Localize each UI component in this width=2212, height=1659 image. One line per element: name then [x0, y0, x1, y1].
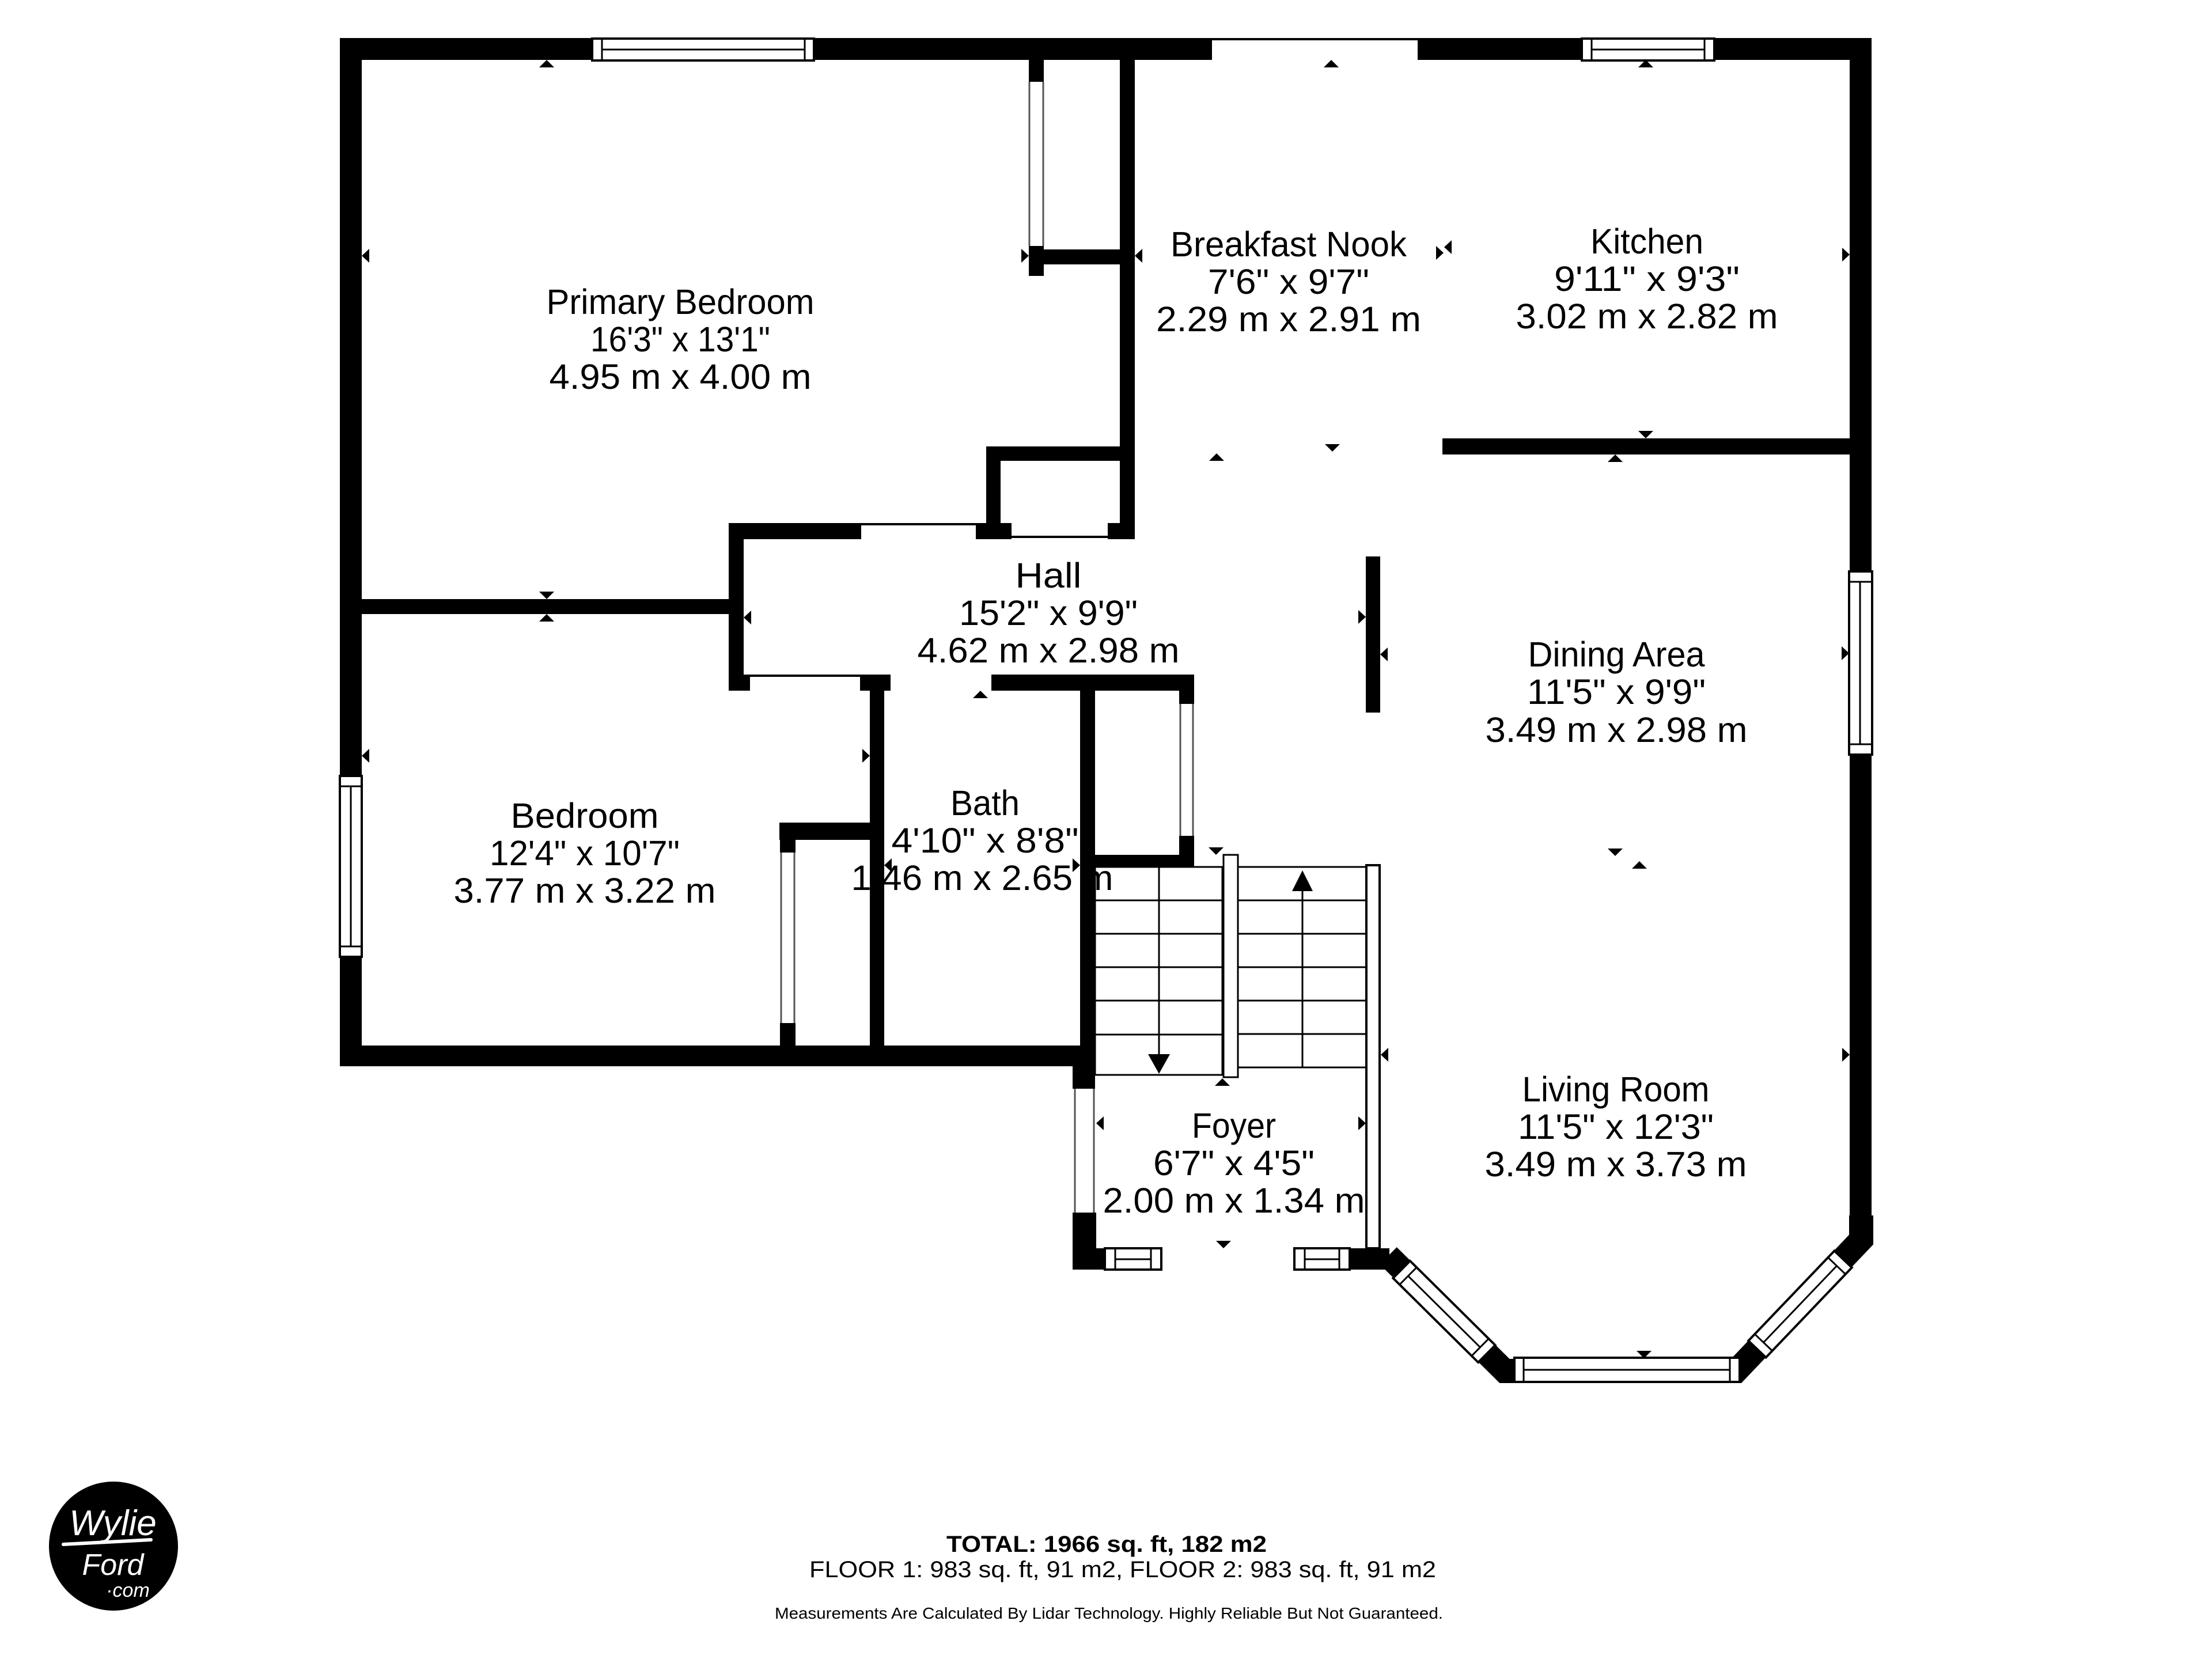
- svg-text:15'2" x 9'9": 15'2" x 9'9": [959, 593, 1138, 632]
- svg-text:16'3" x 13'1": 16'3" x 13'1": [590, 320, 770, 359]
- svg-text:Primary Bedroom: Primary Bedroom: [547, 282, 815, 321]
- svg-text:11'5" x 12'3": 11'5" x 12'3": [1518, 1107, 1714, 1146]
- svg-text:6'7" x 4'5": 6'7" x 4'5": [1153, 1143, 1315, 1183]
- svg-text:2.29 m x 2.91 m: 2.29 m x 2.91 m: [1156, 300, 1421, 339]
- svg-text:Foyer: Foyer: [1192, 1106, 1276, 1145]
- svg-text:Kitchen: Kitchen: [1590, 222, 1703, 261]
- svg-text:Living Room: Living Room: [1522, 1070, 1710, 1109]
- svg-text:FLOOR 1: 983 sq. ft, 91 m2, FL: FLOOR 1: 983 sq. ft, 91 m2, FLOOR 2: 983…: [809, 1557, 1436, 1582]
- svg-text:3.49 m x 2.98 m: 3.49 m x 2.98 m: [1486, 710, 1748, 749]
- svg-text:Breakfast Nook: Breakfast Nook: [1171, 225, 1407, 264]
- svg-text:TOTAL: 1966 sq. ft, 182 m2: TOTAL: 1966 sq. ft, 182 m2: [946, 1532, 1267, 1557]
- svg-text:4.95 m x 4.00 m: 4.95 m x 4.00 m: [550, 357, 812, 396]
- svg-text:Ford: Ford: [82, 1548, 145, 1582]
- svg-text:4.62 m x 2.98 m: 4.62 m x 2.98 m: [918, 631, 1180, 670]
- svg-text:7'6" x 9'7": 7'6" x 9'7": [1208, 262, 1369, 301]
- svg-text:Bath: Bath: [950, 783, 1020, 823]
- svg-text:Bedroom: Bedroom: [511, 796, 659, 835]
- svg-text:Wylie: Wylie: [69, 1503, 157, 1543]
- svg-text:·com: ·com: [106, 1580, 150, 1601]
- svg-text:3.49 m x 3.73 m: 3.49 m x 3.73 m: [1485, 1145, 1747, 1184]
- svg-text:3.77 m x 3.22 m: 3.77 m x 3.22 m: [454, 871, 716, 910]
- svg-text:3.02 m x 2.82 m: 3.02 m x 2.82 m: [1516, 297, 1778, 336]
- svg-text:Hall: Hall: [1016, 556, 1082, 595]
- svg-text:9'11" x 9'3": 9'11" x 9'3": [1554, 259, 1740, 298]
- svg-text:Measurements Are Calculated By: Measurements Are Calculated By Lidar Tec…: [775, 1604, 1443, 1622]
- svg-text:11'5" x 9'9": 11'5" x 9'9": [1527, 672, 1706, 711]
- svg-text:4'10" x 8'8": 4'10" x 8'8": [892, 821, 1079, 860]
- svg-text:12'4" x 10'7": 12'4" x 10'7": [490, 834, 680, 873]
- svg-text:2.00 m x 1.34 m: 2.00 m x 1.34 m: [1103, 1181, 1365, 1220]
- svg-text:Dining Area: Dining Area: [1528, 635, 1705, 674]
